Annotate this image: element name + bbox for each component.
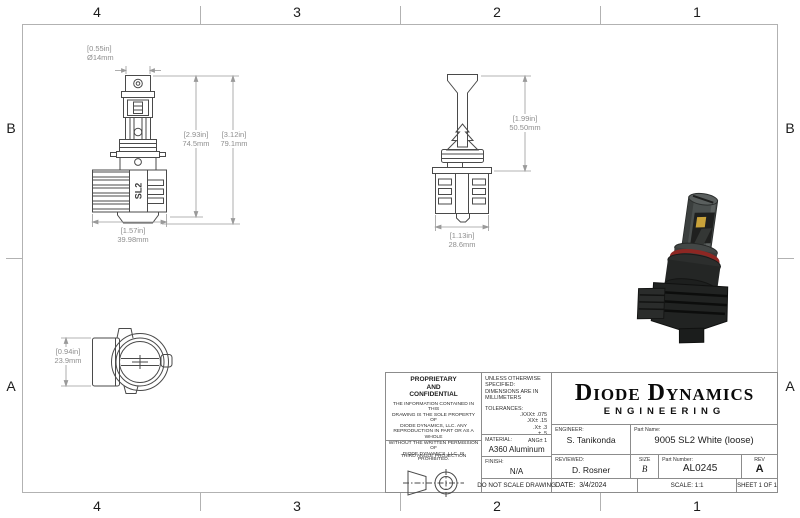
unless-otherwise-line2: DIMENSIONS ARE IN MILLIMETERS: [485, 389, 548, 402]
part-name-cell: Part Name: 9005 SL2 White (loose): [630, 425, 777, 454]
title-block-main-column: Diode Dynamics ENGINEERING ENGINEER: S. …: [552, 373, 777, 492]
part-number-value: AL0245: [662, 463, 738, 474]
date-value: 3/4/2024: [579, 482, 606, 489]
reviewed-value: D. Rosner: [555, 465, 627, 475]
dim-front-body: [2.93in] 74.5mm: [176, 130, 216, 148]
render-3d: [632, 187, 744, 349]
front-logo-text: SL2: [134, 183, 144, 200]
engineering-drawing-sheet: 4 3 2 1 4 3 2 1 B A B A: [0, 0, 800, 518]
size-cell: SIZE B: [630, 455, 658, 478]
date-cell: DATE: 3/4/2024: [552, 479, 637, 492]
unless-otherwise-line1: UNLESS OTHERWISE SPECIFIED:: [485, 376, 548, 389]
size-label: SIZE: [634, 457, 655, 463]
dim-top-view-height: [0.94in] 23.9mm: [47, 347, 89, 365]
rev-value: A: [745, 463, 774, 475]
dim-front-cap: [0.55in] Ø14mm: [86, 44, 115, 62]
reviewed-cell: REVIEWED: D. Rosner: [552, 455, 630, 478]
led-chip: [696, 216, 707, 229]
side-view: [433, 75, 492, 223]
dim-side-width: [1.13in] 28.6mm: [432, 231, 492, 249]
part-name-value: 9005 SL2 White (loose): [634, 435, 774, 446]
title-block-proprietary-column: PROPRIETARY AND CONFIDENTIAL THE INFORMA…: [386, 373, 482, 492]
finish-value: N/A: [485, 467, 548, 476]
size-value: B: [634, 464, 655, 474]
title-block: PROPRIETARY AND CONFIDENTIAL THE INFORMA…: [385, 372, 778, 493]
material-value: A360 Aluminum: [485, 445, 548, 454]
rev-cell: REV A: [741, 455, 777, 478]
company-logo: Diode Dynamics ENGINEERING: [552, 373, 777, 424]
company-subtitle: ENGINEERING: [604, 406, 726, 417]
dim-front-total: [3.12in] 79.1mm: [214, 130, 254, 148]
title-block-specs-column: UNLESS OTHERWISE SPECIFIED: DIMENSIONS A…: [482, 373, 552, 492]
third-angle-symbol-icon: [402, 466, 466, 500]
sheet-cell: SHEET 1 OF 1: [736, 479, 777, 492]
material-cell: MATERIAL: A360 Aluminum: [482, 434, 551, 456]
dim-side-height: [1.99in] 50.50mm: [503, 114, 547, 132]
engineer-value: S. Tanikonda: [555, 435, 627, 445]
third-angle-projection: THIRD ANGLE PROJECTION: [386, 441, 481, 500]
third-angle-label: THIRD ANGLE PROJECTION: [401, 454, 467, 459]
engineer-label: ENGINEER:: [555, 427, 627, 433]
proprietary-heading: PROPRIETARY AND CONFIDENTIAL: [388, 376, 479, 399]
general-specs: UNLESS OTHERWISE SPECIFIED: DIMENSIONS A…: [482, 373, 551, 434]
finish-cell: FINISH: N/A: [482, 456, 551, 478]
part-number-cell: Part Number: AL0245: [658, 455, 741, 478]
part-name-label: Part Name:: [634, 427, 774, 433]
scale-cell: SCALE: 1:1: [637, 479, 736, 492]
dim-front-width: [1.57in] 39.98mm: [103, 226, 163, 244]
company-name: Diode Dynamics: [575, 381, 754, 405]
reviewed-label: REVIEWED:: [555, 457, 627, 463]
material-label: MATERIAL:: [485, 437, 548, 443]
engineer-cell: ENGINEER: S. Tanikonda: [552, 425, 630, 454]
connector-block: [634, 285, 667, 323]
proprietary-notice: PROPRIETARY AND CONFIDENTIAL THE INFORMA…: [386, 373, 481, 441]
date-label: DATE:: [555, 482, 575, 489]
front-view: SL2: [93, 76, 167, 224]
top-view: [93, 329, 173, 394]
finish-label: FINISH:: [485, 459, 548, 465]
do-not-scale-note: DO NOT SCALE DRAWING: [482, 478, 551, 492]
